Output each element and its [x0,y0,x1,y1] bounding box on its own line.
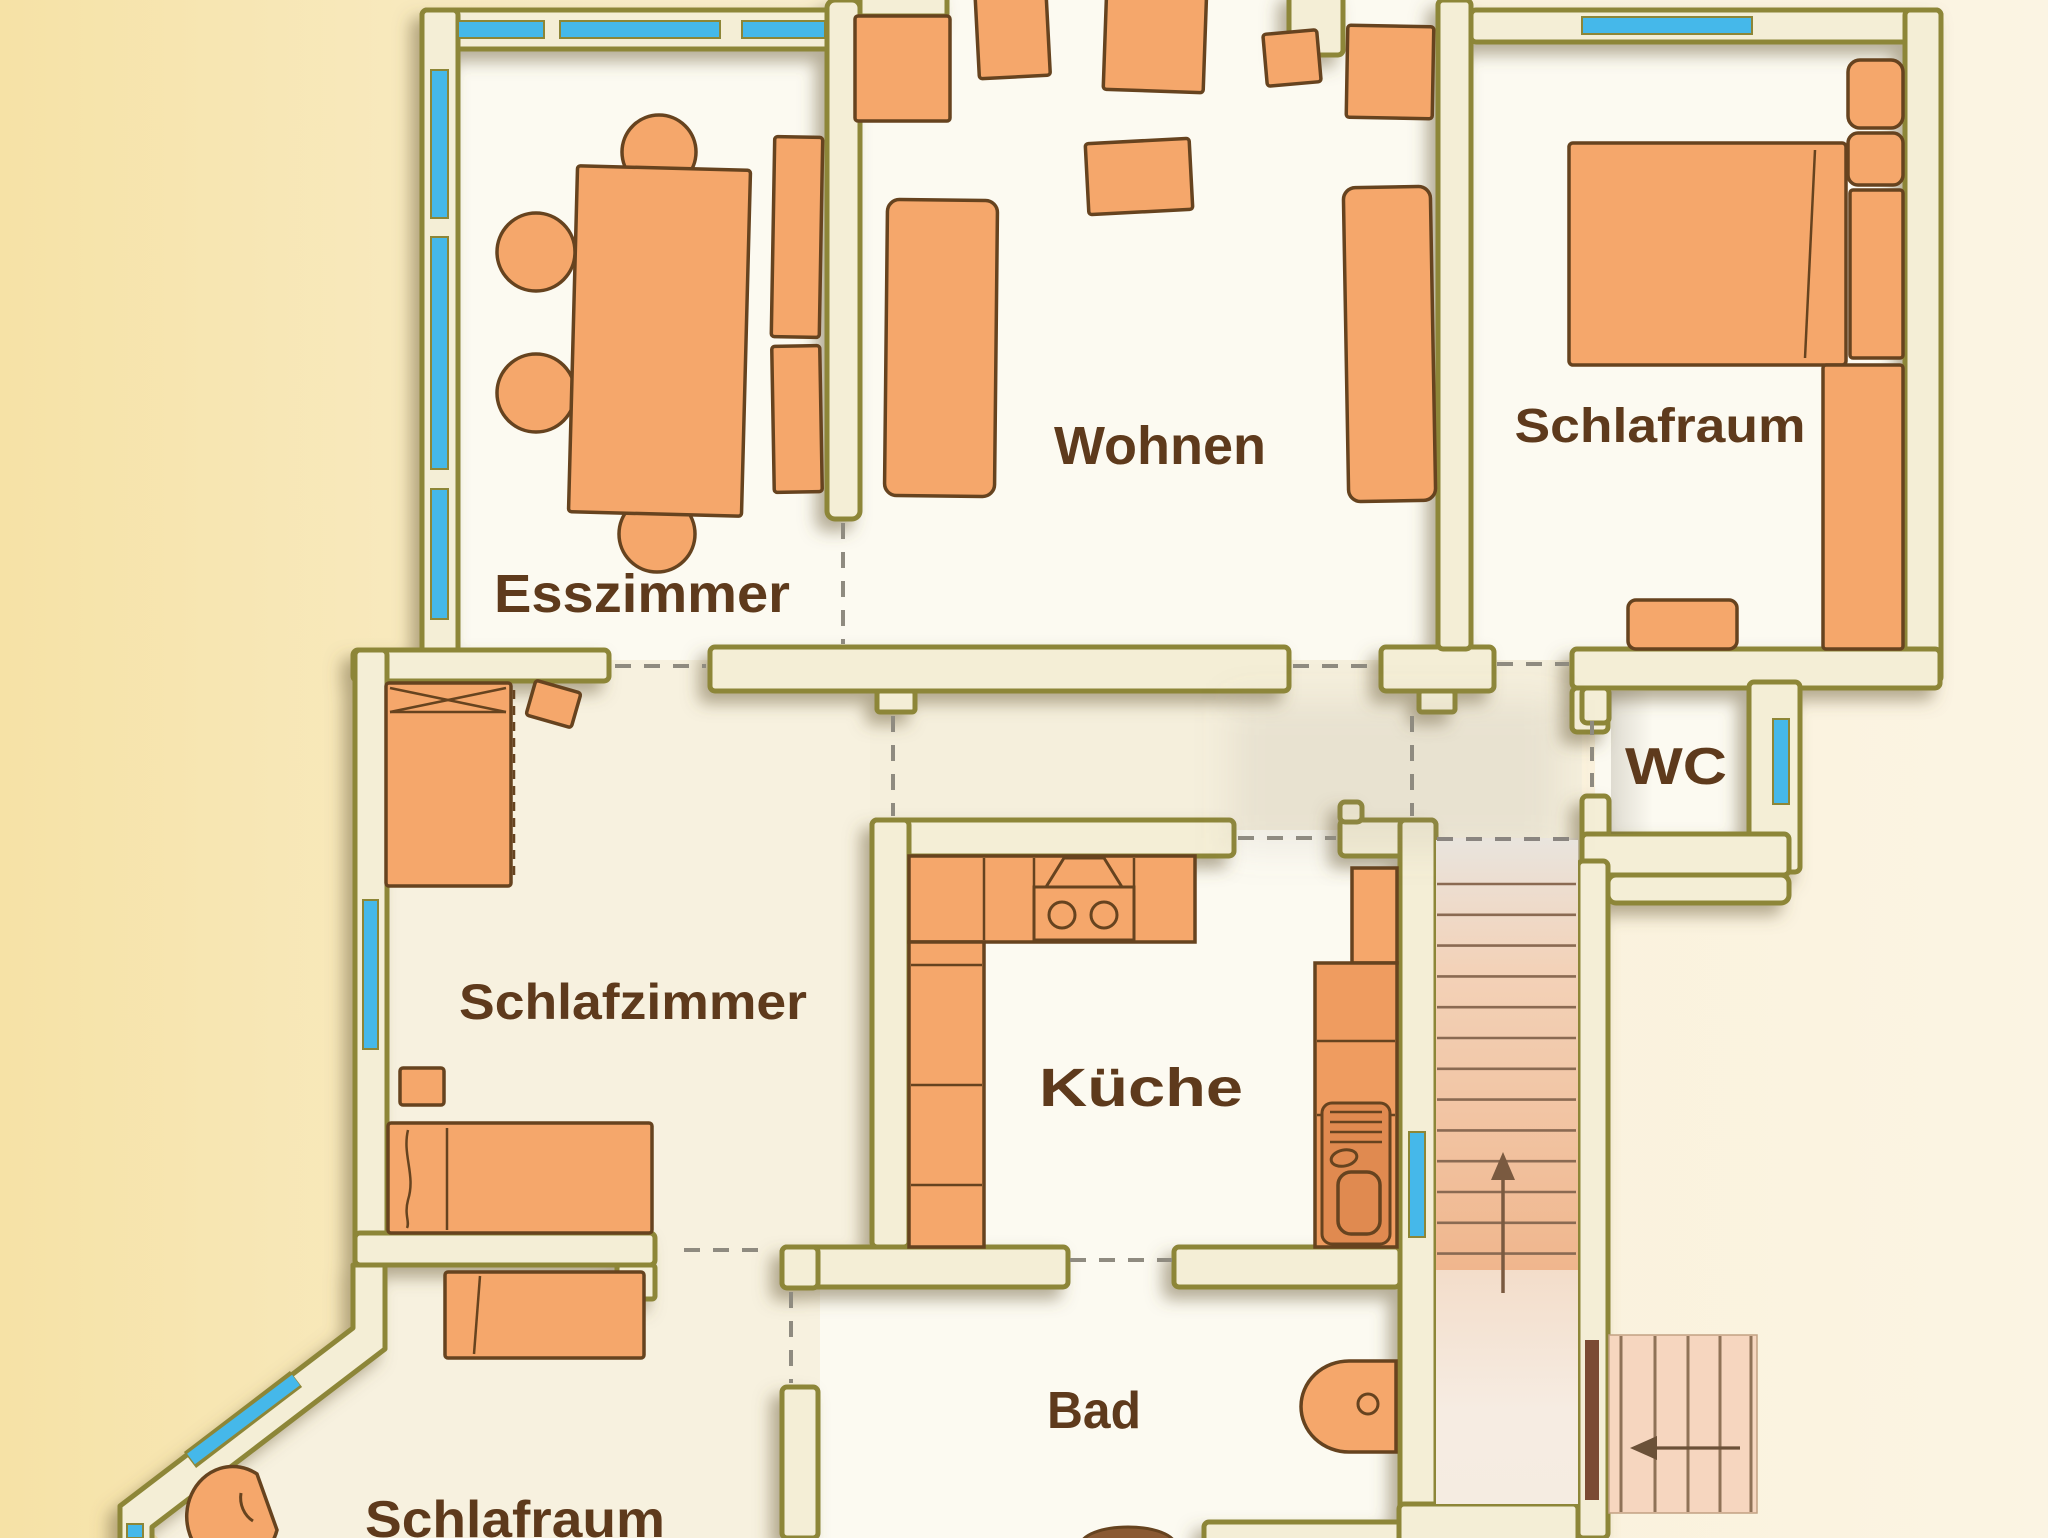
svg-text:Bad: Bad [1047,1382,1141,1440]
svg-text:Schlafzimmer: Schlafzimmer [459,974,807,1030]
svg-text:Schlafraum: Schlafraum [365,1491,665,1538]
svg-text:Wohnen: Wohnen [1054,416,1266,476]
svg-text:Esszimmer: Esszimmer [494,564,790,624]
svg-text:Schlafraum: Schlafraum [1515,400,1806,453]
svg-text:WC: WC [1625,738,1727,796]
svg-text:Küche: Küche [1039,1058,1243,1118]
